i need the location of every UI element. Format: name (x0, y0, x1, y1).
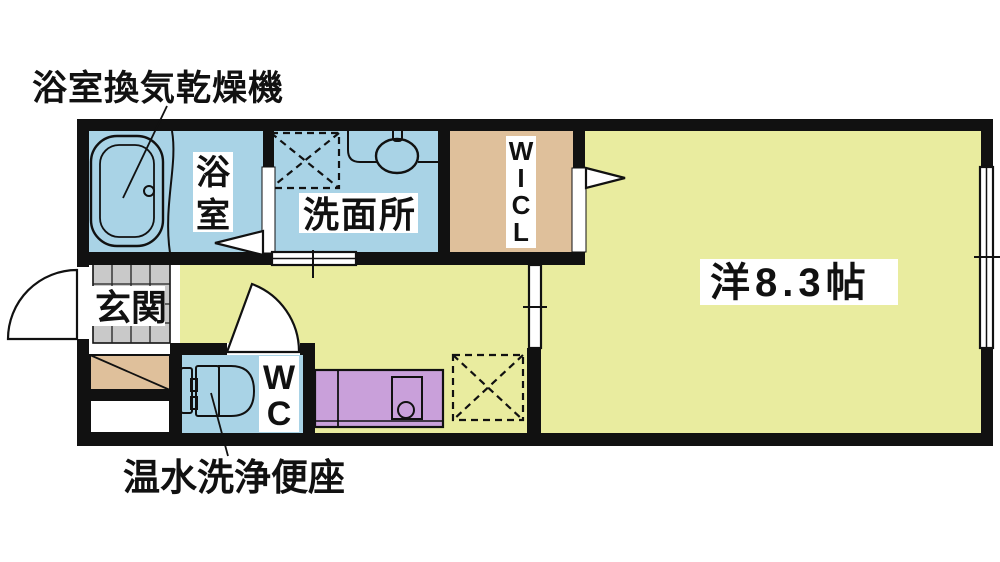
bathroom-floor (88, 131, 263, 253)
floor-plan: 浴 室 洗面所 W I C L W C 玄関 洋8.3帖 浴室換気乾燥機 温水洗… (0, 0, 1000, 562)
entrance-label: 玄関 (95, 287, 167, 328)
entrance-door-arc (8, 270, 77, 339)
floor-plan-page: 浴 室 洗面所 W I C L W C 玄関 洋8.3帖 浴室換気乾燥機 温水洗… (0, 0, 1000, 562)
shoe-storage (90, 355, 170, 390)
main-room-label: 洋8.3帖 (710, 261, 871, 305)
bath-dryer-annotation: 浴室換気乾燥機 (32, 68, 284, 108)
wc-label-char1: W (263, 359, 296, 397)
wicl-label-char4: L (513, 217, 529, 247)
kitchen-counter (315, 370, 443, 427)
toilet-seat-annotation: 温水洗浄便座 (123, 457, 345, 498)
wicl-label-char2: I (517, 163, 524, 193)
bathroom-label-char1: 浴 (196, 154, 231, 192)
wicl-label-char1: W (509, 136, 534, 166)
wicl-door-jamb (572, 168, 586, 252)
wicl-label-char3: C (512, 190, 531, 220)
washroom-label: 洗面所 (303, 194, 417, 235)
wc-label-char2: C (267, 395, 292, 433)
meter-box (90, 400, 170, 433)
bathroom-label-char2: 室 (196, 196, 230, 235)
